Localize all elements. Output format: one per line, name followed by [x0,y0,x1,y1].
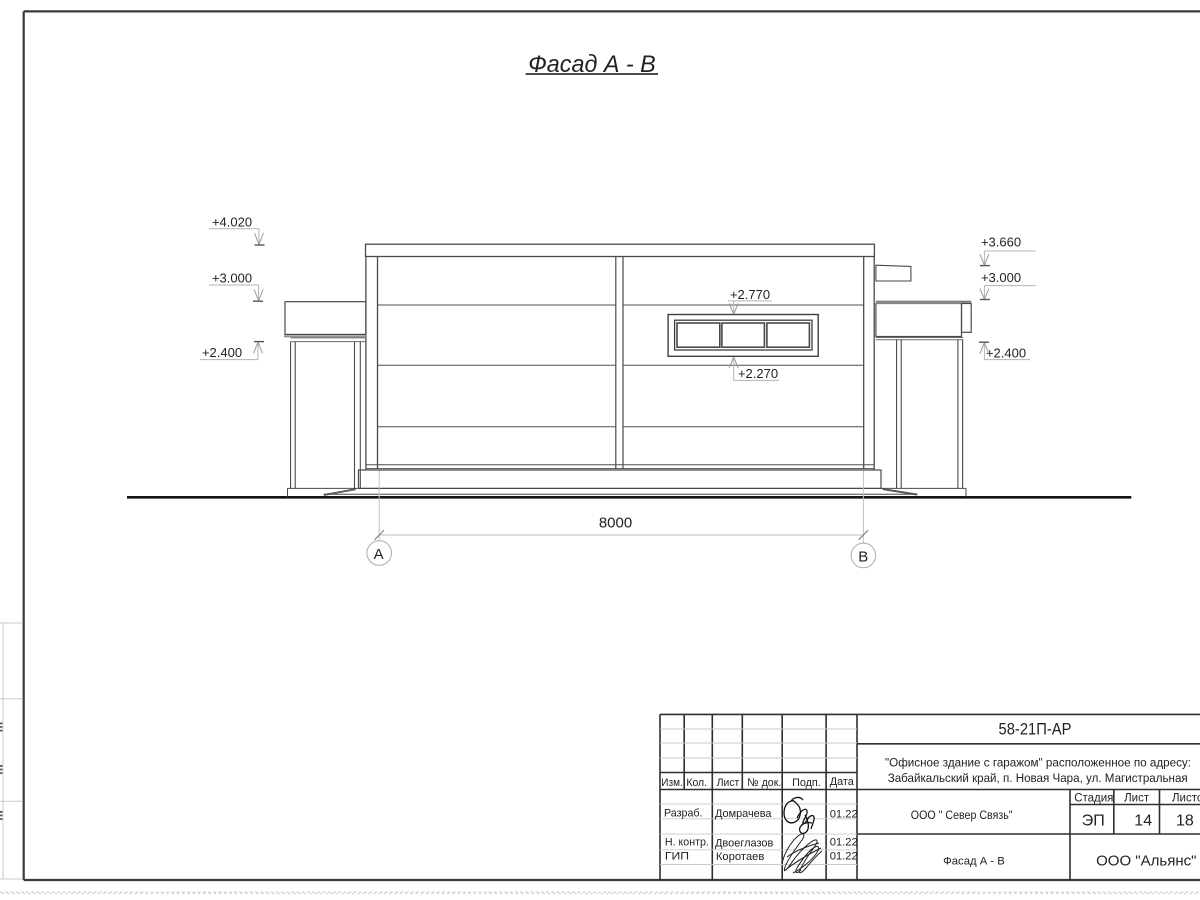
svg-text:"Офисное здание с гаражом" рас: "Офисное здание с гаражом" расположенное… [885,756,1191,770]
svg-text:В: В [858,548,868,565]
svg-text:Фасад А - В: Фасад А - В [943,856,1005,868]
svg-text:01.22: 01.22 [830,809,858,821]
svg-text:+2.400: +2.400 [202,345,242,360]
svg-text:ЭП: ЭП [1082,813,1105,830]
svg-text:58-21П-АР: 58-21П-АР [999,721,1072,739]
svg-text:Стадия: Стадия [1074,793,1113,805]
svg-text:+2.400: +2.400 [986,346,1026,361]
svg-text:ГИП: ГИП [665,851,689,863]
svg-text:ООО "Альянс": ООО "Альянс" [1096,853,1196,870]
svg-text:+3.660: +3.660 [981,235,1021,250]
svg-text:8000: 8000 [599,515,632,532]
svg-text:01.22: 01.22 [830,851,858,863]
svg-text:Дата: Дата [830,776,855,788]
svg-text:+3.000: +3.000 [981,270,1021,285]
svg-text:18: 18 [1176,813,1194,830]
svg-text:+2.270: +2.270 [738,366,778,381]
svg-text:Домрачева: Домрачева [715,808,772,820]
svg-text:Забайкальский край, п. Новая Ч: Забайкальский край, п. Новая Чара, ул. М… [888,771,1188,785]
svg-text:+2.770: +2.770 [730,287,770,302]
svg-text:01.22: 01.22 [830,837,858,849]
svg-text:Лист: Лист [717,777,739,789]
svg-text:Разраб.: Разраб. [664,807,703,819]
svg-text:№ док.: № док. [747,777,781,789]
svg-text:ООО " Север Связь": ООО " Север Связь" [911,808,1013,822]
svg-text:Подп.: Подп. [792,777,821,789]
svg-text:Изм.: Изм. [661,777,683,789]
svg-text:Коротаев: Коротаев [716,851,764,863]
svg-text:Н. контр.: Н. контр. [665,837,709,849]
svg-text:Кол.: Кол. [686,777,707,789]
svg-text:+3.000: +3.000 [212,270,252,285]
svg-text:+4.020: +4.020 [212,214,252,229]
svg-text:Листов: Листов [1172,793,1200,805]
svg-text:14: 14 [1134,813,1152,830]
svg-text:А: А [374,546,384,563]
svg-text:Двоеглазов: Двоеглазов [715,838,773,850]
svg-text:Лист: Лист [1124,793,1150,805]
